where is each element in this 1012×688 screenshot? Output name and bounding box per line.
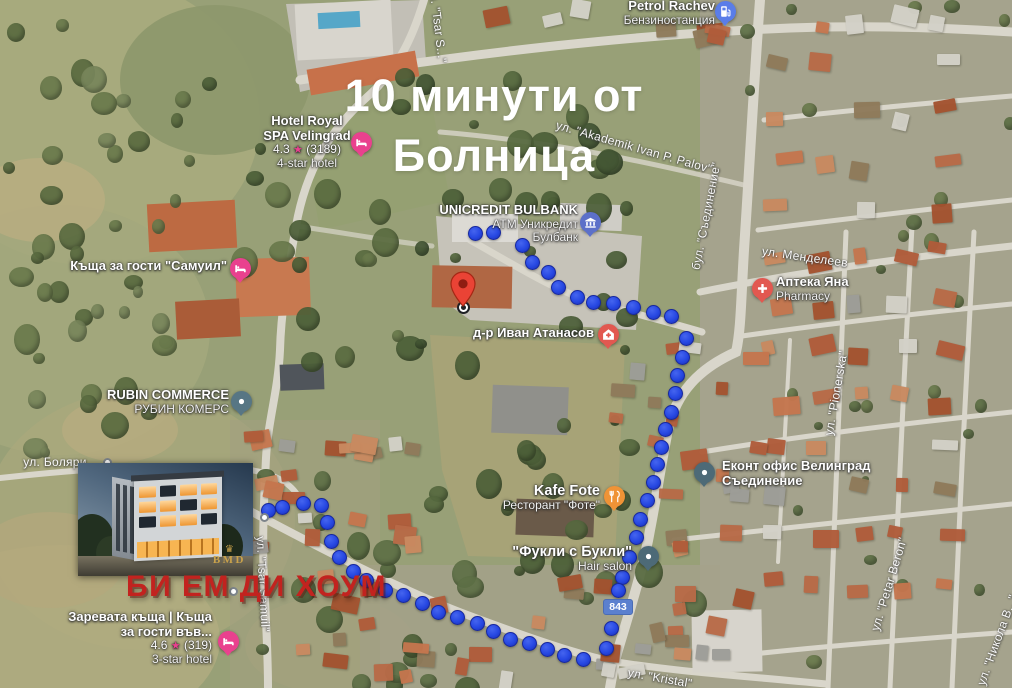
street-label: ул. Менделеев [761,244,849,270]
rating-count: (3189) [306,142,341,156]
poi-subtext: Ресторант "Фоте" [503,499,600,512]
render-ground-floor-glazing [137,538,219,558]
render-building-side [112,477,135,560]
gas-icon[interactable] [715,1,736,22]
dot-icon[interactable] [231,391,252,412]
poi-name: д-р Иван Атанасов [473,326,594,341]
poi-label: Аптека ЯнаPharmacy [776,275,849,303]
poi-label: Заревата къща | Къщаза гости във...4.6 ★… [68,610,212,666]
rating-count: (319) [184,638,212,652]
rating-star-icon: ★ [171,640,181,652]
poi-name: Hotel Royal [263,114,350,129]
pin-tail [757,297,767,303]
dot-icon[interactable] [638,546,659,567]
poi-name: Къща за гости "Самуил" [70,259,227,274]
dot-icon[interactable] [694,462,715,483]
poi-label: д-р Иван Атанасов [473,326,594,341]
pin-tail [585,231,595,237]
poi-subtext: АТМ Уникредит [439,218,578,231]
poi-name: Заревата къща | Къща [68,610,212,625]
poi-name: за гости във... [68,625,212,640]
poi-name: RUBIN COMMERCE [107,388,229,403]
street-label: ул. "Никола В..." [974,593,1012,687]
render-window [180,484,197,496]
hotel-icon[interactable] [218,631,239,652]
pin-tail [720,20,730,26]
rating-value: 4.3 [273,142,290,156]
rating-line: 4.6 ★ (319) [68,639,212,652]
poi-subtext: РУБИН КОМЕРС [107,403,229,416]
food-icon[interactable] [604,486,625,507]
pin-tail [699,481,709,487]
render-window [160,485,177,497]
hotel-icon[interactable] [230,258,251,279]
pin-tail [609,505,619,511]
render-window [160,515,177,527]
bmd-logo: ♛ BMD [213,545,246,567]
street-label: ул. "Petar Beron" [868,536,910,633]
poi-subtext: 3-star hotel [68,653,212,666]
render-window [139,516,156,528]
destination-pin[interactable] [450,271,476,312]
promo-title-line1: 10 минути от [345,66,644,126]
street-label: ул. "Kristal" [627,665,694,688]
promo-title-line2: Болница [345,126,644,186]
building-render-photo: ♛ BMD [78,463,253,576]
poi-name: Еконт офис Велинград [722,459,870,474]
render-window [160,500,177,512]
poi-name: Kafe Fote [503,483,600,499]
render-floor [134,511,222,531]
poi-subtext: Hair salon [512,560,632,573]
promo-title: 10 минути от Болница [345,66,644,186]
poi-subtext: Pharmacy [776,290,849,303]
render-window [180,514,197,526]
poi-name: Аптека Яна [776,275,849,290]
poi-label: Еконт офис ВелинградСъединение [722,459,870,488]
map-pin-icon [450,271,476,307]
rating-line: 4.3 ★ (3189) [263,143,350,156]
poi-name: UNICREDIT BULBANK [439,203,578,218]
pin-tail [603,343,613,349]
render-window [139,486,156,498]
pin-tail [643,565,653,571]
map-canvas[interactable]: ул. "Tsar S..."ул. "Akademik Ivan P. Pal… [0,0,1012,688]
poi-label: Hotel RoyalSPA Velingrad4.3 ★ (3189)4-st… [263,114,350,170]
rating-value: 4.6 [151,638,168,652]
poi-label: RUBIN COMMERCEРУБИН КОМЕРС [107,388,229,416]
brand-name-text: БИ ЕМ ДИ ХОУМ [126,570,387,604]
poi-name: Съединение [722,474,870,489]
pharm-icon[interactable] [752,278,773,299]
poi-label: UNICREDIT BULBANKАТМ УникредитБулбанк [439,203,578,244]
poi-label: Petrol RachevБензиностанция [624,0,715,27]
render-window [201,498,218,510]
poi-label: "Фукли с Букли"Hair salon [512,544,632,574]
poi-name: Petrol Rachev [624,0,715,14]
render-window [201,513,218,525]
pin-tail [235,277,245,283]
poi-name: "Фукли с Букли" [512,544,632,560]
poi-subtext: Бензиностанция [624,14,715,27]
render-window [201,483,218,495]
bmd-logo-text: BMD [213,555,246,567]
poi-label: Къща за гости "Самуил" [70,259,227,274]
med-icon[interactable] [598,324,619,345]
pin-tail [223,650,233,656]
pin-tail [236,410,246,416]
render-window [180,499,197,511]
bank-icon[interactable] [580,212,601,233]
render-building-front [134,476,222,562]
street-label: бул. "Съединение" [689,161,724,271]
poi-label: Kafe FoteРесторант "Фоте" [503,483,600,513]
poi-subtext: Булбанк [439,231,578,244]
street-label: ул. "Pionerska" [822,350,851,437]
poi-subtext: 4-star hotel [263,157,350,170]
street-label: ул. "Tsar S..." [426,0,449,64]
poi-name: SPA Velingrad [263,129,350,144]
rating-star-icon: ★ [293,144,303,156]
render-window [139,501,156,513]
